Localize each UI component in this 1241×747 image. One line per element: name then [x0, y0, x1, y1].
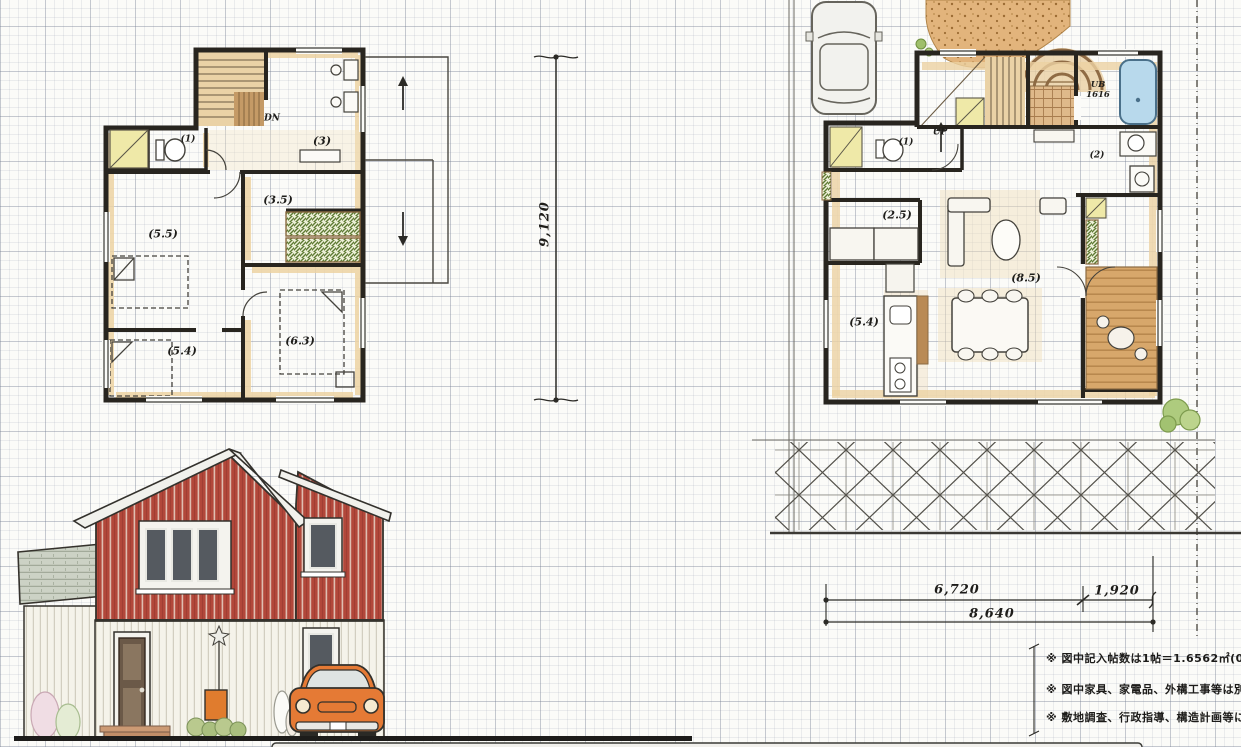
room-label-living-dining: (8.5): [1011, 273, 1041, 284]
room-label-2f-bedroom-east: (6.3): [285, 336, 315, 347]
room-label-kitchen: (5.4): [849, 317, 879, 328]
architectural-drawing-sheet: DN (1) (3) (3.5) (5.5) (5.4) (6.3) UP (1…: [0, 0, 1241, 747]
room-label-storage: (2.5): [882, 210, 912, 221]
walkin-closet-shelves: [286, 212, 360, 262]
drawing-canvas: [0, 0, 1241, 747]
dimension-width-side: 1,920: [1094, 585, 1140, 598]
terrace-hatch: [775, 442, 1215, 530]
dimension-width-total: 8,640: [969, 608, 1015, 621]
stairs-down-label: DN: [264, 115, 280, 124]
corridor-storage: [1086, 198, 1106, 264]
storage-closet: [830, 228, 918, 260]
room-label-2f-toilet: (1): [181, 136, 196, 145]
garden-bush: [1160, 399, 1200, 432]
first-floor-plan: [806, 0, 1200, 432]
beds-2f: [110, 256, 354, 396]
car-top-view: [806, 2, 882, 114]
ground-line: [14, 736, 692, 741]
bathroom: [1120, 60, 1156, 124]
note-line-1: ※ 図中記入帖数は1帖＝1.6562㎡(0.91m: [1046, 650, 1241, 666]
stairs-up-label: UP: [933, 129, 948, 138]
dimension-width-main: 6,720: [934, 584, 980, 597]
annex-roof: [18, 544, 104, 604]
second-floor-plan: [102, 46, 448, 404]
room-label-2f-inner: (3.5): [263, 195, 293, 206]
room-label-2f-hall: (3): [313, 136, 331, 147]
dimension-site-depth: 9,120: [539, 201, 552, 247]
room-label-2f-bedroom-south: (5.4): [167, 346, 197, 357]
wood-deck: [1057, 267, 1157, 389]
note-line-3: ※ 敷地調査、行政指導、構造計画等により: [1046, 709, 1241, 725]
note-line-2: ※ 図中家具、家電品、外構工事等は別途: [1046, 681, 1241, 697]
room-label-1f-toilet: (1): [899, 139, 914, 148]
toilet-2f: [110, 130, 185, 168]
staircase-2f: [198, 52, 264, 126]
bath-unit-label: UB 1616: [1086, 81, 1110, 99]
room-label-washroom: (2): [1090, 152, 1105, 161]
bath-unit-type: UB: [1091, 81, 1106, 90]
roof-outline-and-arrows: [365, 57, 448, 283]
bath-unit-size: 1616: [1086, 91, 1110, 100]
sheet-edge-object: [272, 743, 1142, 747]
room-label-2f-bedroom-west: (5.5): [148, 229, 178, 240]
door-swings-2f: [206, 150, 267, 316]
